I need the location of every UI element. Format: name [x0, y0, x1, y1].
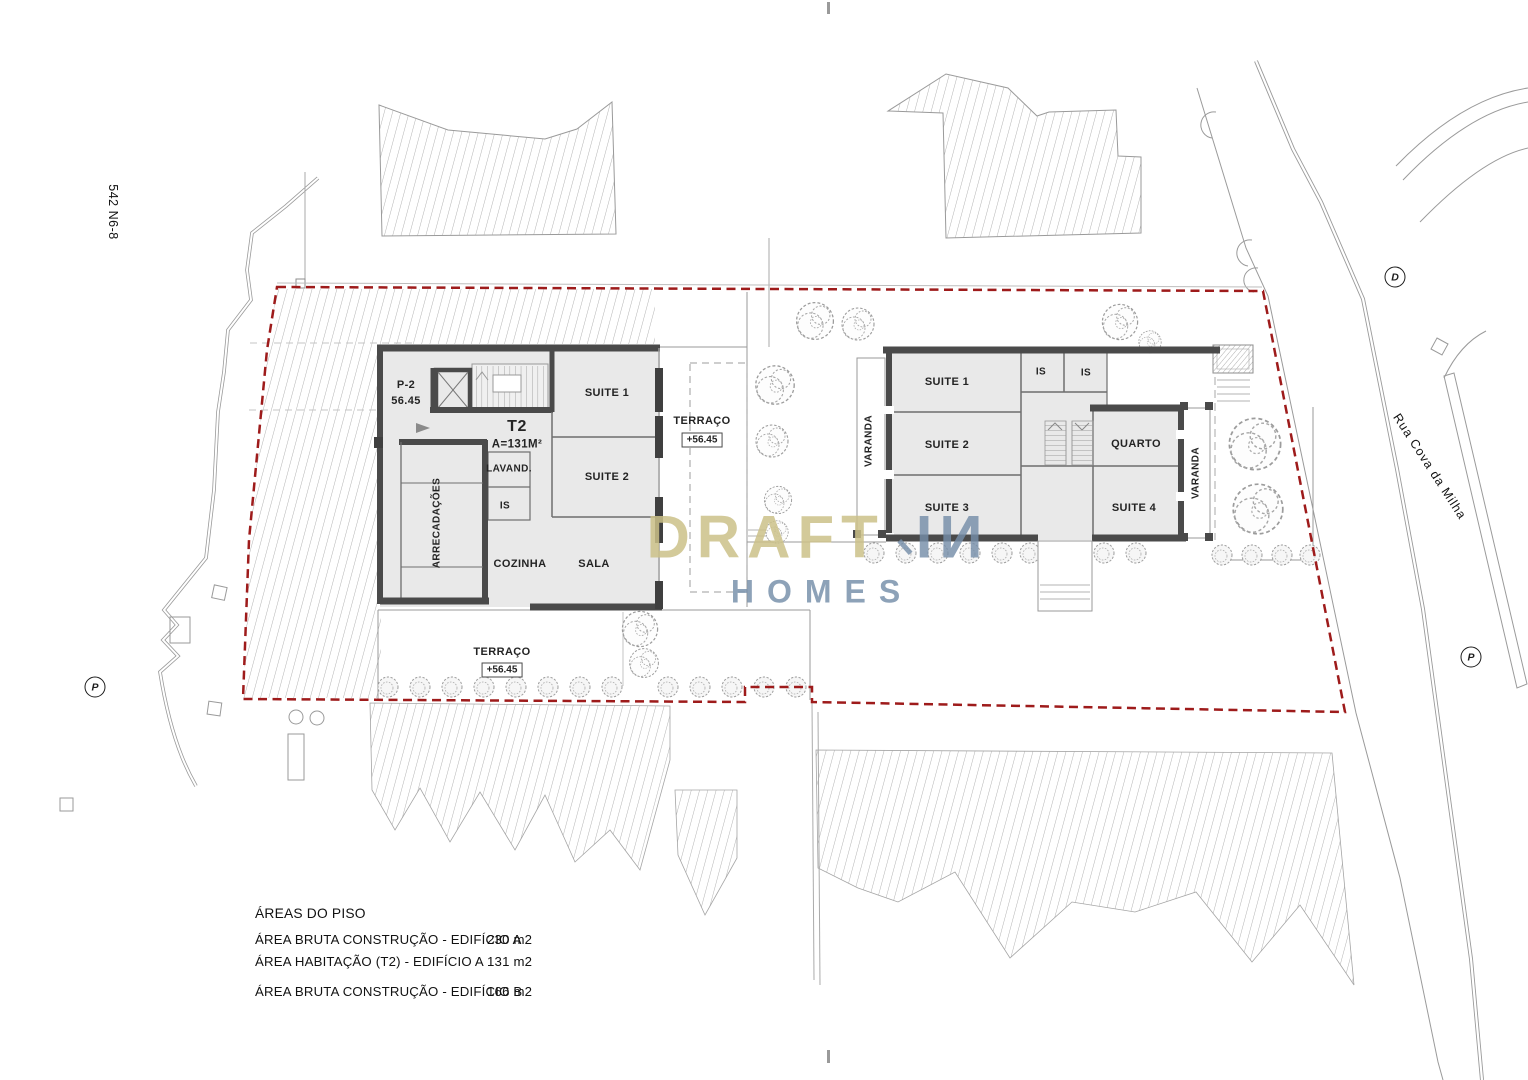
shrub-row-south [378, 677, 806, 697]
unit-area-label: A=131M² [492, 439, 542, 452]
room-suite2-b: SUITE 2 [925, 439, 969, 451]
areas-table-title: ÁREAS DO PISO [255, 906, 366, 921]
room-is2-b: IS [1081, 368, 1091, 379]
neighbor-building-north-west [379, 102, 616, 236]
terrace-east-level: +56.45 [682, 433, 723, 448]
areas-row-2-value: 131 m2 [487, 954, 532, 969]
varanda-east-label: VARANDA [1191, 447, 1202, 499]
stair-core-level: 56.45 [391, 395, 421, 407]
shrub-row-east [1212, 545, 1320, 565]
room-is-a: IS [500, 501, 510, 512]
room-suite1-a: SUITE 1 [585, 387, 629, 399]
room-suite3-b: SUITE 3 [925, 502, 969, 514]
areas-row-1-label: ÁREA BRUTA CONSTRUÇÃO - EDIFÍCIO A [255, 932, 487, 947]
marker-p-west: P [85, 677, 106, 698]
room-cozinha: COZINHA [494, 558, 547, 570]
room-quarto: QUARTO [1111, 438, 1161, 450]
stair-core-ref: P-2 [397, 379, 415, 391]
areas-row-3-label: ÁREA BRUTA CONSTRUÇÃO - EDIFÍCIO B [255, 984, 487, 999]
areas-row-1: ÁREA BRUTA CONSTRUÇÃO - EDIFÍCIO A 230 m… [255, 932, 532, 947]
marker-d: D [1385, 267, 1406, 288]
room-is1-b: IS [1036, 367, 1046, 378]
floor-plan-sheet: 542 N6-8 Rua Cova da Milha P-2 56.45 T2 … [0, 0, 1528, 1080]
room-sala: SALA [578, 558, 610, 570]
areas-row-2: ÁREA HABITAÇÃO (T2) - EDIFÍCIO A 131 m2 [255, 954, 532, 969]
plot-ref-label: 542 N6-8 [105, 184, 119, 239]
varanda-west-label: VARANDA [864, 415, 875, 467]
terrace-south-level: +56.45 [482, 663, 523, 678]
room-lavand: LAVAND. [486, 464, 532, 475]
areas-row-2-label: ÁREA HABITAÇÃO (T2) - EDIFÍCIO A [255, 954, 487, 969]
room-suite1-b: SUITE 1 [925, 376, 969, 388]
areas-row-3-value: 166 m2 [487, 984, 532, 999]
room-suite2-a: SUITE 2 [585, 471, 629, 483]
building-b [853, 350, 1220, 611]
shrub-row-building-b [864, 543, 1146, 563]
plan-linework [0, 0, 1528, 1080]
room-arrecadacoes: ARRECADAÇÕES [432, 478, 443, 568]
neighbor-building-north-east [888, 74, 1141, 238]
terrace-east-label: TERRAÇO [673, 415, 730, 427]
sheet-ticks [827, 2, 830, 1063]
marker-p-east: P [1461, 647, 1482, 668]
areas-row-3: ÁREA BRUTA CONSTRUÇÃO - EDIFÍCIO B 166 m… [255, 984, 532, 999]
unit-type-label: T2 [507, 418, 527, 436]
terrace-south-label: TERRAÇO [473, 646, 530, 658]
room-suite4-b: SUITE 4 [1112, 502, 1156, 514]
areas-row-1-value: 230 m2 [487, 932, 532, 947]
